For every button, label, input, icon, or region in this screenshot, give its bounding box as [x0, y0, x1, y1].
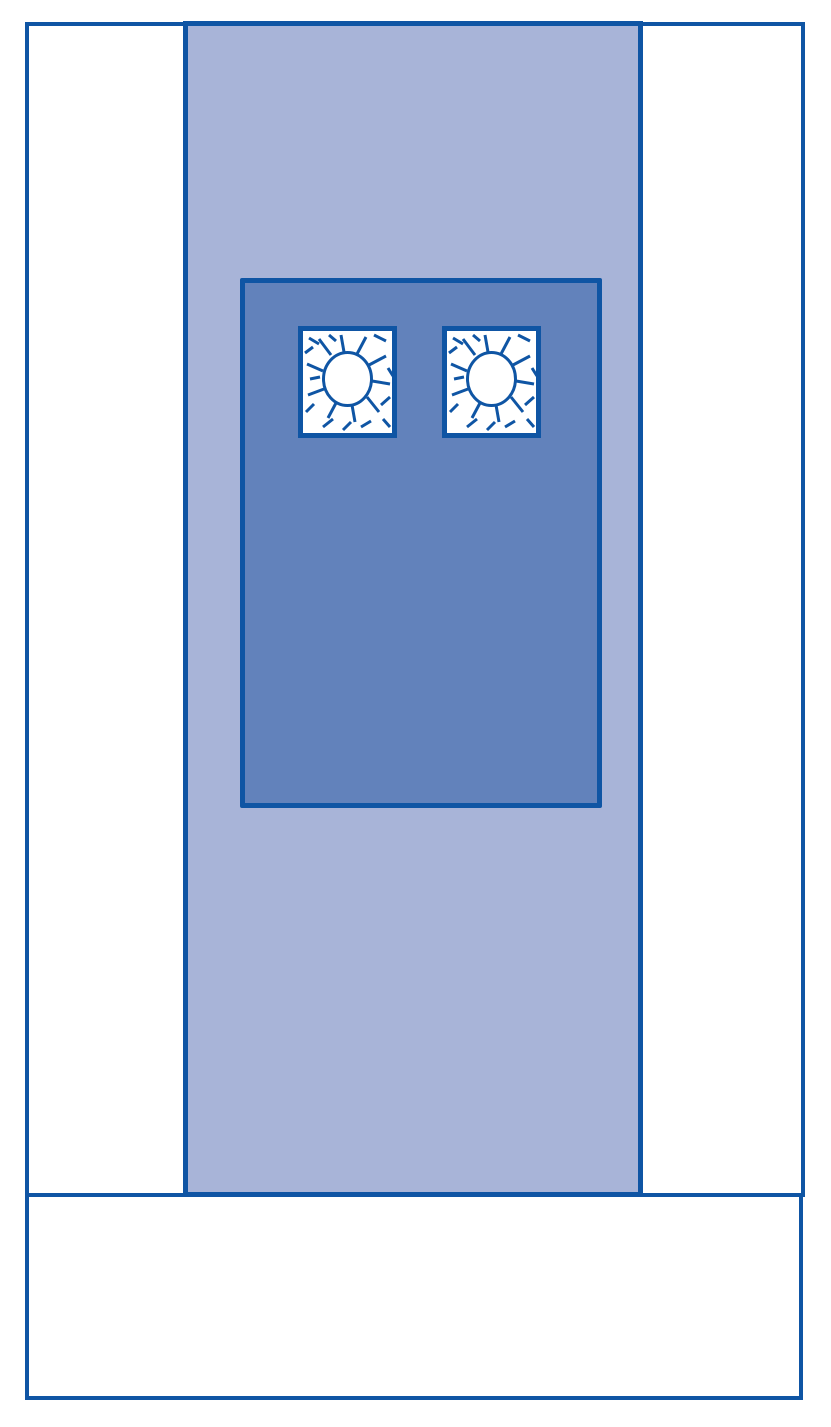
- fenestration-left: [298, 326, 397, 438]
- bottom-drape-extension: [25, 1193, 803, 1400]
- drape-right-panel: [639, 22, 805, 1197]
- absorbent-reinforcement-field: [240, 278, 602, 808]
- fenestration-right: [442, 326, 541, 438]
- drape-diagram: [0, 0, 831, 1427]
- reinforcement-band: [183, 21, 643, 1197]
- drape-left-panel: [25, 22, 187, 1197]
